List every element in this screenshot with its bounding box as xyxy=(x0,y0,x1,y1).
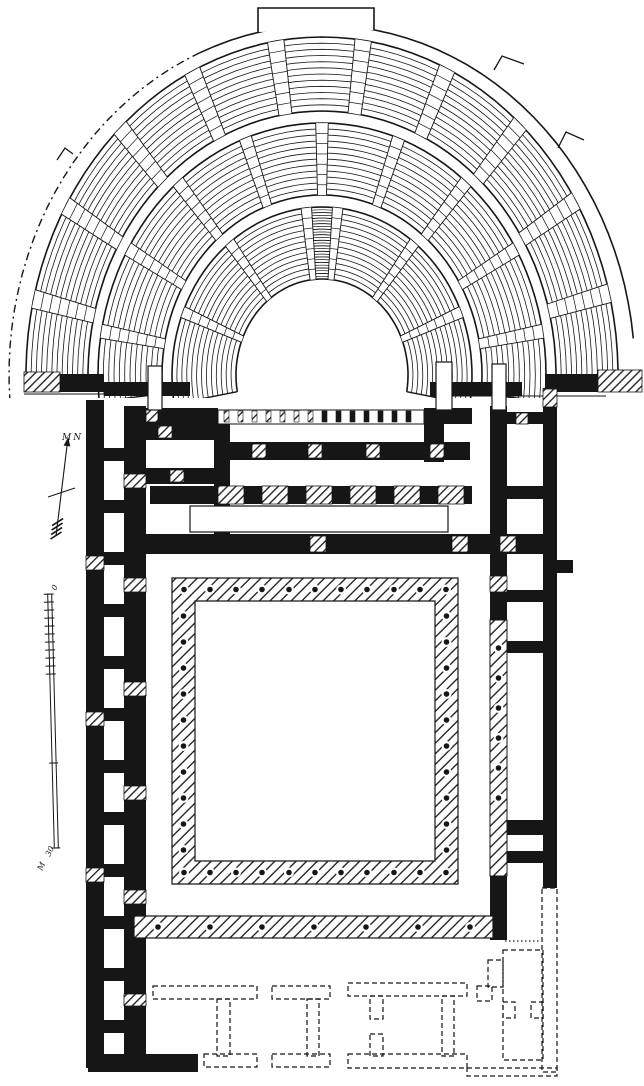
wall-hatched xyxy=(252,444,266,458)
wall-black xyxy=(124,406,146,1062)
wall-black xyxy=(134,982,146,992)
colonnade-tick xyxy=(392,411,397,422)
wall-black xyxy=(86,400,104,1068)
wall-hatched xyxy=(124,994,146,1006)
wall-black xyxy=(104,500,124,513)
wall-hatched xyxy=(310,536,326,552)
column-dot xyxy=(443,870,449,876)
wall-outlined xyxy=(148,366,162,410)
column-dot xyxy=(444,665,450,671)
column-dot xyxy=(443,587,449,593)
column-dot xyxy=(391,870,397,876)
wall-black xyxy=(507,820,543,835)
column-dot xyxy=(259,587,265,593)
column-dot xyxy=(496,765,502,771)
wall-hatched xyxy=(308,444,322,458)
colonnade-tick xyxy=(238,411,243,422)
colonnade-tick xyxy=(322,411,327,422)
colonnade-tick xyxy=(294,411,299,422)
wall-black xyxy=(104,708,124,721)
column-dot xyxy=(181,613,187,619)
east-colonnade-member xyxy=(490,620,507,876)
column-dot xyxy=(207,870,213,876)
boundary-top-bump xyxy=(258,8,374,32)
column-dot xyxy=(207,924,213,930)
wall-black xyxy=(543,388,557,888)
wall-black xyxy=(104,760,124,773)
column-dot xyxy=(496,795,502,801)
wall-black xyxy=(146,424,214,440)
column-dot xyxy=(444,613,450,619)
column-dot xyxy=(444,769,450,775)
column-dot xyxy=(181,870,187,876)
wall-black xyxy=(104,604,124,617)
wall-black xyxy=(244,486,262,504)
wall-outlined xyxy=(436,362,452,410)
wall-hatched xyxy=(124,682,146,696)
wall-black xyxy=(150,486,218,504)
column-dot xyxy=(181,691,187,697)
wall-black xyxy=(490,592,507,620)
column-dot xyxy=(181,847,187,853)
wall-hatched xyxy=(158,426,172,438)
column-dot xyxy=(233,587,239,593)
column-dot xyxy=(467,924,473,930)
column-dot xyxy=(233,870,239,876)
wall-hatched xyxy=(262,486,288,504)
wall-hatched xyxy=(452,536,468,552)
wall-black xyxy=(104,448,124,461)
column-dot xyxy=(444,821,450,827)
wall-black xyxy=(557,560,573,573)
wall-hatched xyxy=(124,890,146,904)
column-dot xyxy=(181,795,187,801)
column-dot xyxy=(259,924,265,930)
wall-hatched xyxy=(86,868,104,882)
wall-black xyxy=(420,486,438,504)
column-dot xyxy=(181,587,187,593)
column-dot xyxy=(444,639,450,645)
wall-black xyxy=(88,1054,198,1072)
wall-hatched xyxy=(86,556,104,570)
column-dot xyxy=(181,821,187,827)
column-dot xyxy=(181,717,187,723)
wall-hatched xyxy=(516,413,528,424)
colonnade-tick xyxy=(308,411,313,422)
column-dot xyxy=(364,587,370,593)
wall-hatched xyxy=(394,486,420,504)
wall-black xyxy=(104,382,190,396)
column-dot xyxy=(312,870,318,876)
wall-hatched xyxy=(170,470,184,482)
wall-black xyxy=(104,1020,124,1033)
wall-black xyxy=(104,968,124,981)
wall-hatched xyxy=(438,486,464,504)
wall-black xyxy=(104,864,124,877)
wall-hatched xyxy=(543,389,557,407)
column-dot xyxy=(496,645,502,651)
column-dot xyxy=(286,870,292,876)
wall-black xyxy=(104,812,124,825)
wall-hatched xyxy=(146,410,158,422)
column-dot xyxy=(363,924,369,930)
wall-outlined xyxy=(190,506,448,532)
plan-sheet: MN 0 30 M xyxy=(0,0,644,1086)
wall-black xyxy=(507,641,543,653)
wall-hatched xyxy=(366,444,380,458)
column-dot xyxy=(496,675,502,681)
wall-hatched xyxy=(500,536,516,552)
wall-hatched xyxy=(218,486,244,504)
wall-hatched xyxy=(598,370,642,392)
wall-hatched xyxy=(490,576,507,592)
column-dot xyxy=(364,870,370,876)
column-dot xyxy=(415,924,421,930)
wall-black xyxy=(507,851,543,863)
wall-hatched xyxy=(24,372,60,392)
column-dot xyxy=(496,735,502,741)
wall-black xyxy=(376,486,394,504)
wall-outlined xyxy=(492,364,506,410)
wall-black xyxy=(58,374,104,392)
wall-black xyxy=(288,486,306,504)
colonnade-tick xyxy=(350,411,355,422)
column-dot xyxy=(155,924,161,930)
wall-hatched xyxy=(86,712,104,726)
theater-plan-drawing: MN 0 30 M xyxy=(0,0,644,1086)
column-dot xyxy=(417,587,423,593)
column-dot xyxy=(444,691,450,697)
wall-hatched xyxy=(430,444,444,458)
wall-black xyxy=(332,486,350,504)
column-dot xyxy=(417,870,423,876)
colonnade-tick xyxy=(280,411,285,422)
wall-black xyxy=(104,552,124,565)
column-dot xyxy=(311,924,317,930)
colonnade-tick xyxy=(252,411,257,422)
column-dot xyxy=(181,743,187,749)
column-dot xyxy=(181,769,187,775)
column-dot xyxy=(181,665,187,671)
column-dot xyxy=(181,639,187,645)
column-dot xyxy=(312,587,318,593)
wall-hatched xyxy=(124,474,146,488)
wall-black xyxy=(104,656,124,669)
wall-black xyxy=(464,486,472,504)
colonnade-tick xyxy=(336,411,341,422)
wall-black xyxy=(507,590,543,602)
column-dot xyxy=(259,870,265,876)
column-dot xyxy=(286,587,292,593)
colonnade-tick xyxy=(406,411,411,422)
colonnade-tick xyxy=(364,411,369,422)
column-dot xyxy=(338,870,344,876)
column-dot xyxy=(496,705,502,711)
column-dot xyxy=(444,847,450,853)
wall-black xyxy=(140,534,545,554)
column-dot xyxy=(444,795,450,801)
colonnade-tick xyxy=(266,411,271,422)
wall-black xyxy=(104,916,124,929)
column-dot xyxy=(444,717,450,723)
wall-black xyxy=(507,486,543,499)
north-label: MN xyxy=(61,433,83,443)
colonnade-tick xyxy=(378,411,383,422)
wall-hatched xyxy=(306,486,332,504)
column-dot xyxy=(207,587,213,593)
column-dot xyxy=(338,587,344,593)
wall-hatched xyxy=(124,578,146,592)
column-dot xyxy=(391,587,397,593)
column-dot xyxy=(444,743,450,749)
colonnade-tick xyxy=(224,411,229,422)
wall-hatched xyxy=(124,786,146,800)
wall-hatched xyxy=(350,486,376,504)
